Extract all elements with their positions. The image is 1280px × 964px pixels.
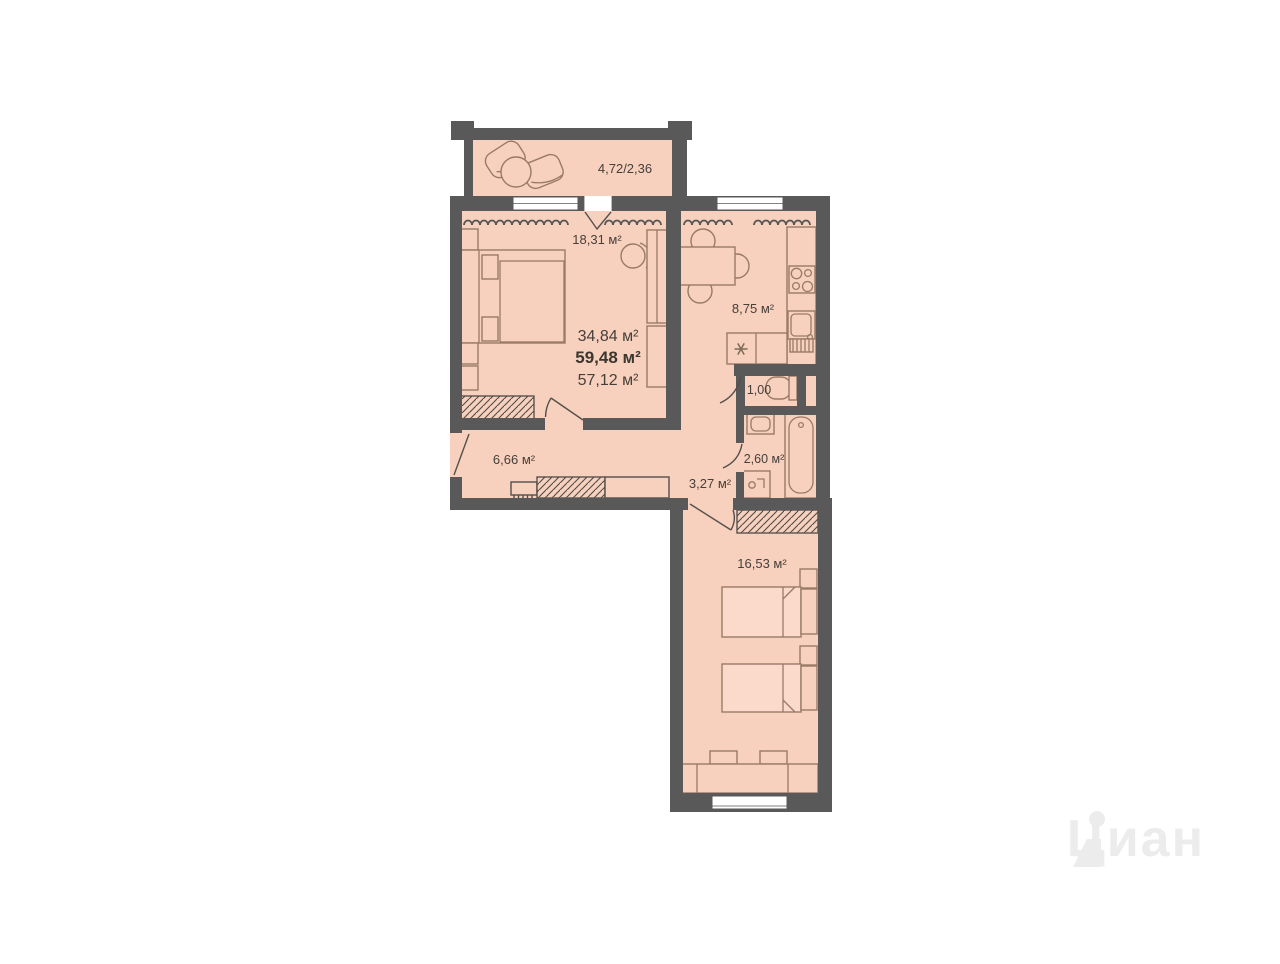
wall-outer-right-lower (818, 510, 832, 812)
wall-outer-left (450, 196, 462, 433)
washing-machine-icon (742, 471, 770, 498)
pillow-icon (482, 317, 498, 341)
reduced-area-label: 57,12 м² (578, 372, 639, 389)
dining-table-icon (678, 247, 735, 285)
floor-plan-page: 4,72/2,36 18,31 м² 34,84 м² 59,48 м² 57,… (0, 0, 1280, 964)
wall-divider (666, 211, 681, 430)
stove-icon (789, 266, 815, 293)
cabinet-icon (647, 326, 668, 387)
wall-outer-right (816, 196, 830, 500)
wall-hall-bottom (450, 498, 832, 510)
bedroom2-floor (680, 500, 820, 795)
corridor-area-label: 3,27 м² (689, 476, 732, 491)
watermark-person-icon (1067, 809, 1113, 869)
watermark: Циан (1067, 809, 1205, 869)
window-bedroom2 (712, 796, 787, 809)
balcony-area-label: 4,72/2,36 (598, 161, 652, 176)
wall (464, 140, 473, 198)
wall-wc-bath (736, 406, 830, 415)
single-bed-icon (722, 587, 801, 637)
double-bed-icon (460, 250, 565, 343)
kitchen-area-label: 8,75 м² (732, 301, 775, 316)
bedroom2-area-label: 16,53 м² (737, 556, 787, 571)
wall-kitchen-bottom (734, 364, 830, 376)
pillow-icon (482, 255, 498, 279)
wall-wc-right (797, 364, 806, 412)
wall (672, 140, 687, 198)
kitchen-lower-counter (727, 333, 787, 364)
single-bed-icon (722, 664, 801, 712)
nightstand-icon (461, 343, 478, 364)
hallway-area-label: 6,66 м² (493, 452, 536, 467)
wc-area-label: 1,00 (747, 383, 771, 397)
window-kitchen (717, 197, 783, 210)
bedroom-area-label: 18,31 м² (572, 232, 622, 247)
kitchen-sink-icon (788, 311, 815, 352)
wardrobe-icon (737, 510, 818, 533)
bathtub-icon (785, 412, 817, 498)
bedside-cabinet-icon (801, 666, 817, 710)
bathroom-area-label: 2,60 м² (744, 452, 785, 466)
wall-outer-left-lower (670, 510, 683, 812)
hall-wardrobe-icon (537, 477, 669, 498)
bedside-cabinet-icon (801, 589, 817, 634)
wall-pillar (668, 121, 692, 140)
window-bedroom-balcony (513, 197, 578, 210)
nightstand-icon (800, 569, 817, 588)
wall (462, 128, 678, 140)
nightstand-icon (461, 229, 478, 250)
total-area-label: 59,48 м² (575, 348, 641, 367)
dresser-icon (461, 366, 478, 390)
nightstand-icon (800, 646, 817, 665)
living-area-label: 34,84 м² (578, 328, 639, 345)
